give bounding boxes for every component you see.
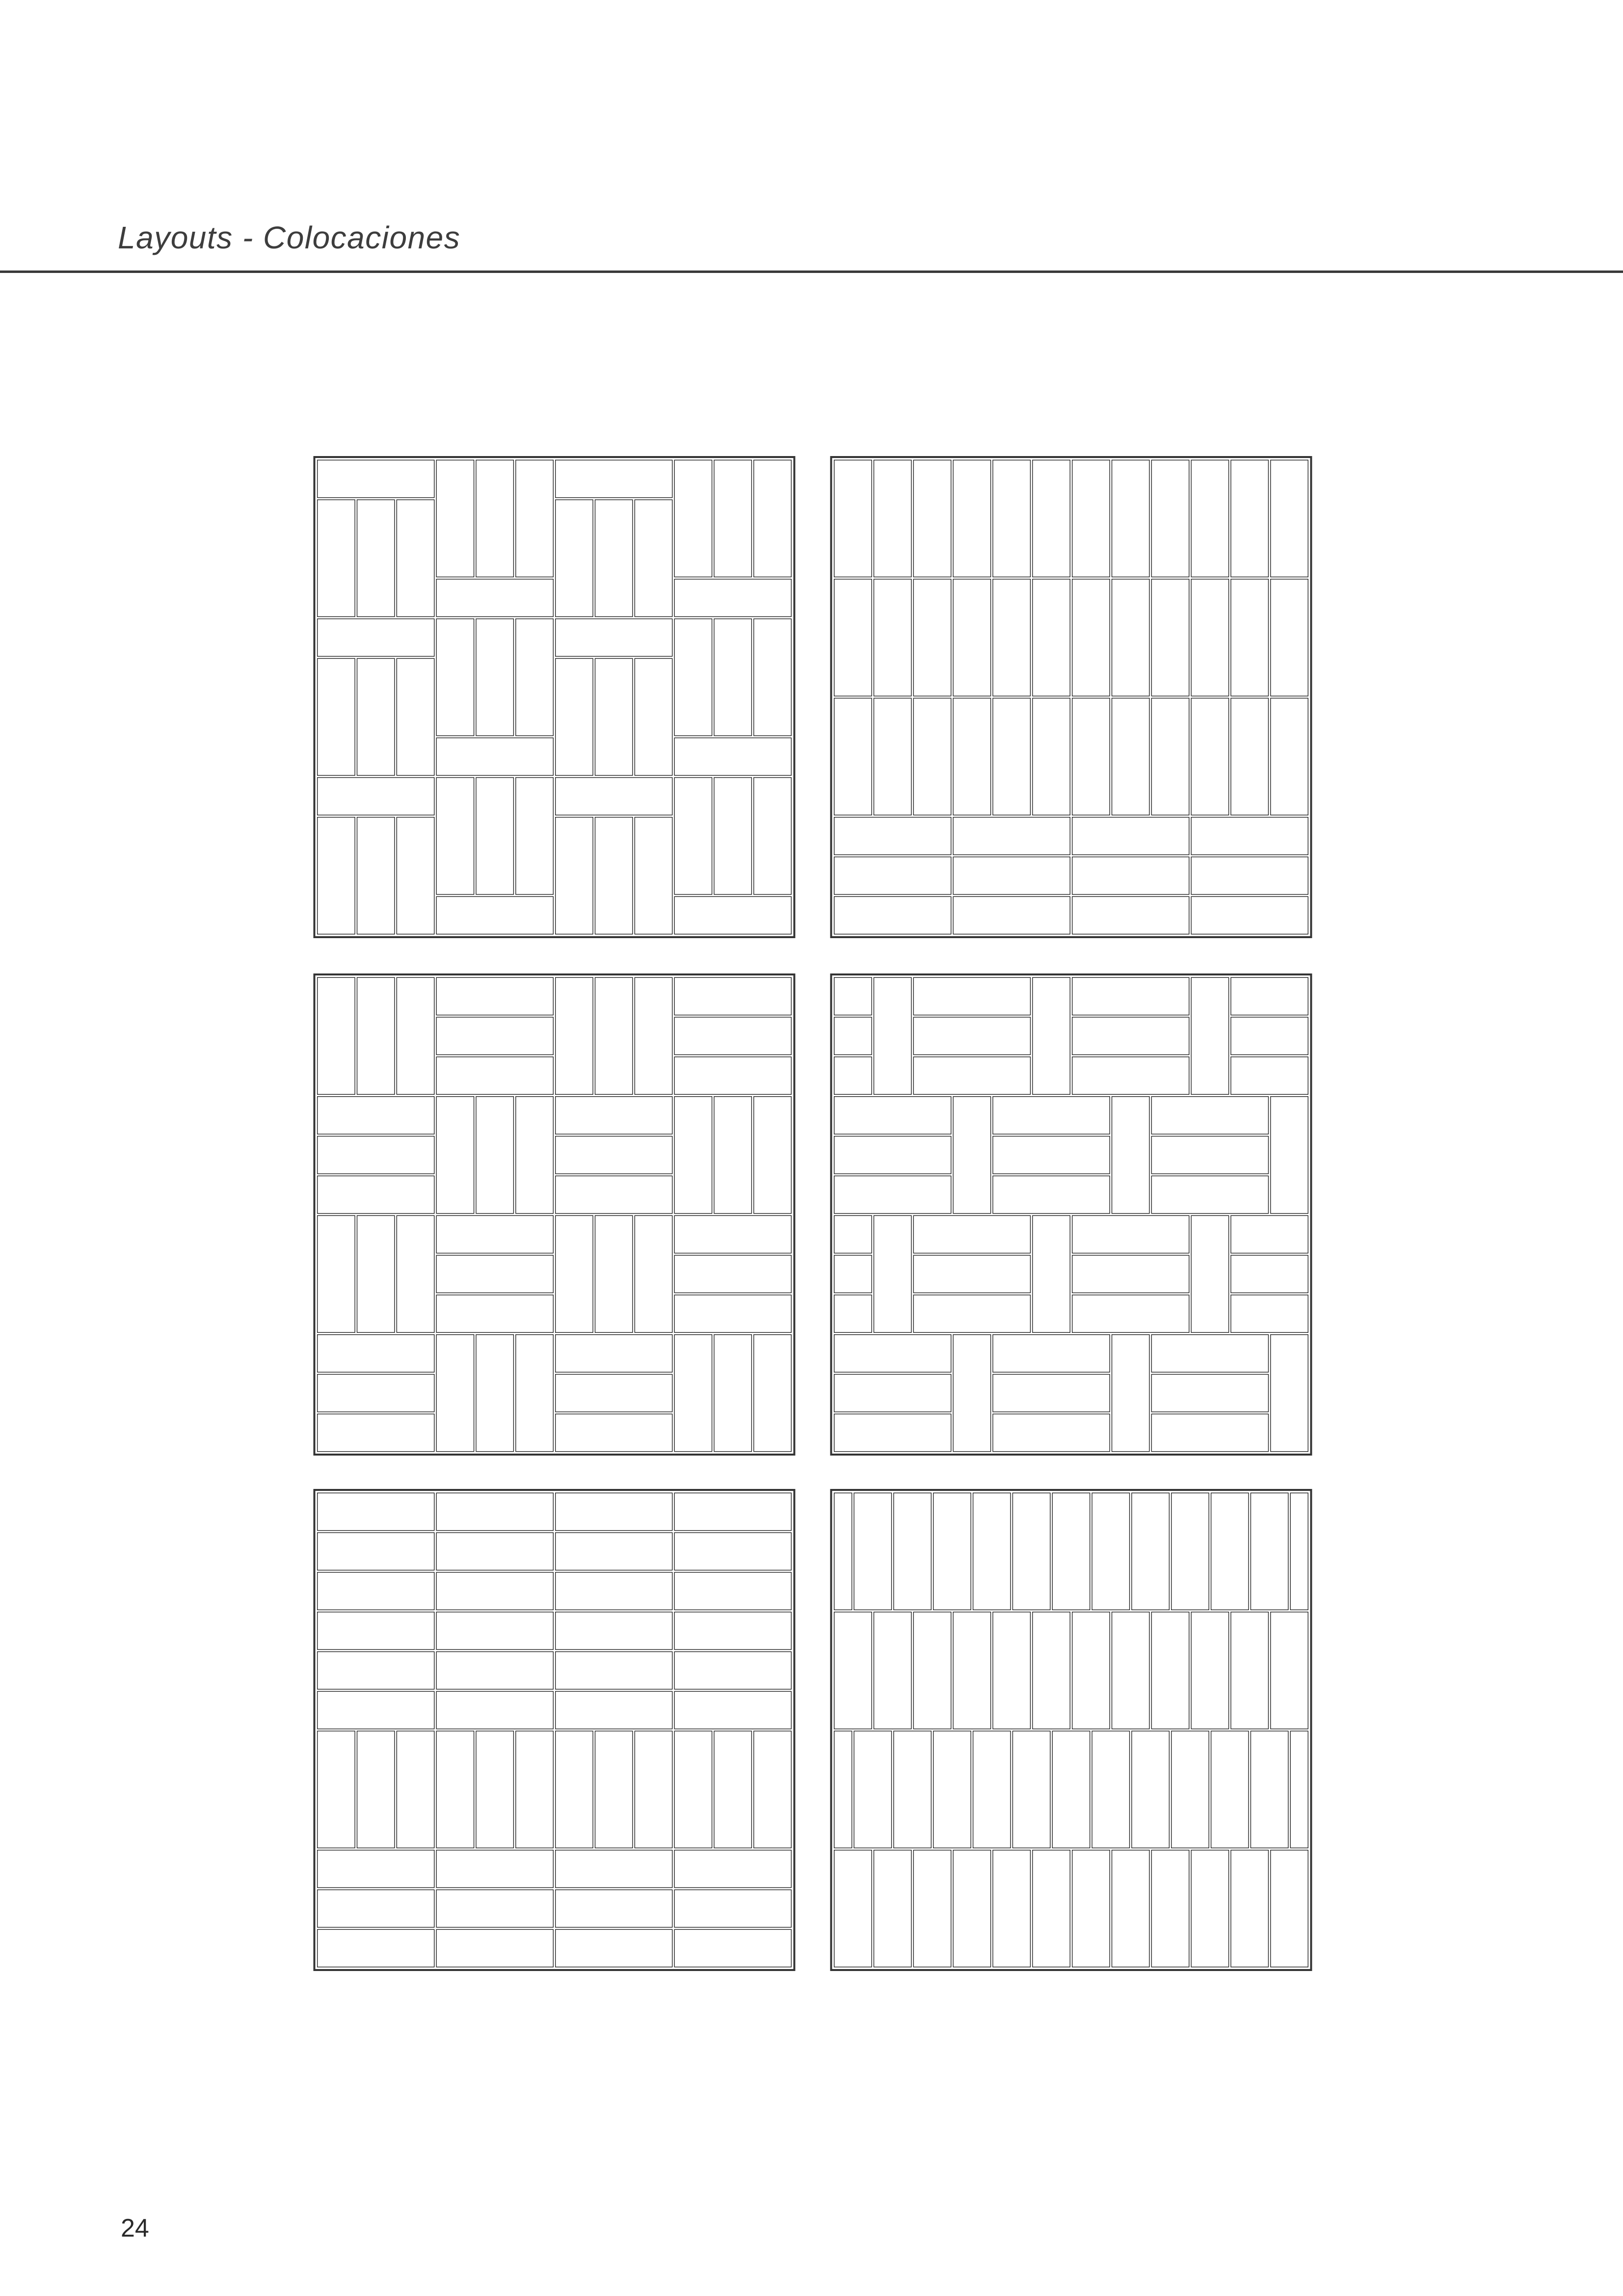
tile bbox=[357, 1216, 395, 1332]
tile bbox=[318, 1890, 434, 1927]
tile bbox=[436, 1057, 553, 1094]
tile bbox=[874, 579, 911, 696]
tile bbox=[1072, 1057, 1189, 1094]
tile bbox=[318, 1572, 434, 1610]
tile bbox=[874, 1850, 911, 1967]
tile bbox=[674, 1890, 791, 1927]
tile bbox=[436, 1216, 553, 1253]
tile bbox=[1033, 579, 1070, 696]
tile bbox=[674, 579, 791, 617]
tile bbox=[674, 977, 791, 1015]
tile bbox=[1151, 698, 1189, 815]
tile bbox=[1191, 857, 1308, 894]
panel-vertical-running-bond bbox=[830, 1489, 1312, 1971]
tile bbox=[1231, 1612, 1268, 1729]
tile bbox=[556, 1375, 672, 1412]
tile bbox=[993, 1612, 1030, 1729]
tile bbox=[556, 1691, 672, 1729]
tile bbox=[556, 1216, 593, 1332]
tile bbox=[834, 1335, 951, 1372]
tile bbox=[993, 698, 1030, 815]
tile bbox=[595, 1216, 633, 1332]
tile bbox=[1151, 1375, 1268, 1412]
tile bbox=[1271, 698, 1308, 815]
tile bbox=[714, 1335, 751, 1452]
tile bbox=[1072, 817, 1189, 855]
tile bbox=[953, 1097, 990, 1214]
tile bbox=[854, 1493, 891, 1610]
tile bbox=[1151, 1335, 1268, 1372]
tile bbox=[993, 1375, 1110, 1412]
tile bbox=[1072, 1017, 1189, 1054]
tile bbox=[1052, 1731, 1090, 1848]
tile bbox=[1033, 698, 1070, 815]
tile bbox=[1191, 977, 1228, 1094]
tile bbox=[834, 1136, 951, 1174]
tile bbox=[436, 1255, 553, 1293]
tile-pattern-svg bbox=[313, 973, 796, 1456]
tile bbox=[1211, 1493, 1249, 1610]
tile bbox=[953, 1612, 990, 1729]
tile bbox=[1072, 460, 1110, 577]
tile bbox=[476, 460, 513, 577]
panel-pier-and-panel-offset bbox=[830, 973, 1312, 1456]
tile bbox=[1251, 1731, 1288, 1848]
tile bbox=[436, 1493, 553, 1530]
tile bbox=[556, 1097, 672, 1134]
tile bbox=[318, 460, 434, 497]
tile bbox=[913, 977, 1030, 1015]
tile bbox=[913, 579, 951, 696]
tile bbox=[1072, 1255, 1189, 1293]
tile bbox=[834, 817, 951, 855]
tile bbox=[894, 1731, 931, 1848]
tile bbox=[993, 1097, 1110, 1134]
tile bbox=[714, 1731, 751, 1848]
tile bbox=[874, 1216, 911, 1332]
tile bbox=[318, 658, 355, 775]
tile bbox=[318, 1533, 434, 1570]
tile bbox=[953, 896, 1070, 934]
tile bbox=[516, 1097, 553, 1214]
tile bbox=[476, 1097, 513, 1214]
tile bbox=[436, 579, 553, 617]
tile bbox=[595, 817, 633, 934]
tile bbox=[318, 500, 355, 617]
tile bbox=[1211, 1731, 1249, 1848]
tile bbox=[834, 460, 872, 577]
tile bbox=[834, 1493, 852, 1610]
tile bbox=[674, 1533, 791, 1570]
tile bbox=[357, 977, 395, 1094]
tile bbox=[674, 1612, 791, 1649]
tile-pattern-svg bbox=[313, 1489, 796, 1971]
tile bbox=[397, 977, 434, 1094]
tile bbox=[318, 1731, 355, 1848]
tile bbox=[874, 977, 911, 1094]
tile bbox=[1271, 579, 1308, 696]
tile bbox=[1191, 460, 1228, 577]
tile bbox=[595, 977, 633, 1094]
tile bbox=[556, 1493, 672, 1530]
tile bbox=[556, 500, 593, 617]
tile bbox=[754, 1731, 791, 1848]
tile bbox=[953, 1850, 990, 1967]
tile bbox=[1231, 1216, 1308, 1253]
tile bbox=[714, 619, 751, 736]
tile bbox=[913, 460, 951, 577]
panel-basketweave bbox=[313, 973, 796, 1456]
tile bbox=[973, 1493, 1011, 1610]
tile bbox=[1271, 1097, 1308, 1214]
tile bbox=[1112, 1612, 1149, 1729]
tile bbox=[894, 1493, 931, 1610]
tile bbox=[913, 1295, 1030, 1332]
tile bbox=[595, 1731, 633, 1848]
tile bbox=[913, 1850, 951, 1967]
tile bbox=[1112, 579, 1149, 696]
tile bbox=[1151, 579, 1189, 696]
tile bbox=[1072, 896, 1189, 934]
tile bbox=[556, 817, 593, 934]
tile bbox=[1151, 1136, 1268, 1174]
tile bbox=[1132, 1493, 1169, 1610]
tile bbox=[1231, 1017, 1308, 1054]
tile bbox=[1191, 1612, 1228, 1729]
tile bbox=[318, 1216, 355, 1332]
tile bbox=[993, 1176, 1110, 1213]
tile bbox=[1033, 1850, 1070, 1967]
tile bbox=[674, 1929, 791, 1967]
tile bbox=[436, 460, 474, 577]
tile bbox=[516, 460, 553, 577]
tile bbox=[318, 1136, 434, 1174]
tile bbox=[318, 1097, 434, 1134]
tile bbox=[1231, 579, 1268, 696]
tile bbox=[1072, 1216, 1189, 1253]
tile bbox=[1191, 896, 1308, 934]
tile-pattern-svg bbox=[830, 1489, 1312, 1971]
tile bbox=[1072, 698, 1110, 815]
tile bbox=[436, 1691, 553, 1729]
page-title: Layouts - Colocaciones bbox=[118, 222, 460, 253]
tile bbox=[834, 1612, 872, 1729]
tile bbox=[754, 619, 791, 736]
tile bbox=[1012, 1731, 1050, 1848]
tile bbox=[357, 817, 395, 934]
tile bbox=[913, 698, 951, 815]
tile bbox=[556, 1890, 672, 1927]
tile bbox=[556, 977, 593, 1094]
tile bbox=[318, 817, 355, 934]
tile bbox=[556, 658, 593, 775]
tile bbox=[674, 1057, 791, 1094]
tile bbox=[1191, 817, 1308, 855]
tile bbox=[1151, 1612, 1189, 1729]
tile bbox=[516, 619, 553, 736]
tile bbox=[1171, 1493, 1209, 1610]
tile bbox=[1271, 1850, 1308, 1967]
tile bbox=[1231, 977, 1308, 1015]
panel-alternating-column-stack bbox=[313, 456, 796, 938]
tile bbox=[993, 1414, 1110, 1451]
tile bbox=[674, 1295, 791, 1332]
tile bbox=[993, 1136, 1110, 1174]
tile bbox=[1132, 1731, 1169, 1848]
tile bbox=[397, 1216, 434, 1332]
tile bbox=[913, 1216, 1030, 1253]
tile bbox=[1012, 1493, 1050, 1610]
tile bbox=[556, 1176, 672, 1213]
tile bbox=[674, 1850, 791, 1888]
tile bbox=[993, 1335, 1110, 1372]
tile bbox=[913, 1057, 1030, 1094]
tile bbox=[357, 1731, 395, 1848]
tile bbox=[993, 460, 1030, 577]
tile bbox=[436, 1731, 474, 1848]
tile bbox=[318, 1691, 434, 1729]
tile bbox=[953, 1335, 990, 1452]
tile bbox=[318, 1335, 434, 1372]
tile bbox=[834, 1414, 951, 1451]
tile bbox=[953, 857, 1070, 894]
tile bbox=[436, 1612, 553, 1649]
tile bbox=[674, 1572, 791, 1610]
tile bbox=[635, 977, 672, 1094]
tile bbox=[357, 658, 395, 775]
tile bbox=[635, 658, 672, 775]
tile bbox=[1151, 1414, 1268, 1451]
tile bbox=[556, 778, 672, 815]
tile bbox=[874, 698, 911, 815]
tile bbox=[436, 1533, 553, 1570]
tile bbox=[476, 619, 513, 736]
tile bbox=[318, 1850, 434, 1888]
page-number: 24 bbox=[121, 2215, 149, 2241]
tile bbox=[674, 619, 712, 736]
tile bbox=[953, 698, 990, 815]
tile bbox=[318, 977, 355, 1094]
tile bbox=[318, 1929, 434, 1967]
tile bbox=[1033, 460, 1070, 577]
tile bbox=[993, 1850, 1030, 1967]
tile bbox=[1033, 977, 1070, 1094]
tile bbox=[913, 1612, 951, 1729]
tile bbox=[834, 1176, 951, 1213]
tile bbox=[1072, 1295, 1189, 1332]
tile bbox=[1151, 460, 1189, 577]
tile bbox=[436, 738, 553, 775]
tile bbox=[834, 1731, 852, 1848]
tile bbox=[318, 1375, 434, 1412]
tile bbox=[635, 500, 672, 617]
tile bbox=[436, 619, 474, 736]
tile bbox=[1151, 1176, 1268, 1213]
tile bbox=[754, 778, 791, 894]
tile bbox=[436, 1017, 553, 1054]
tile bbox=[1191, 1216, 1228, 1332]
tile bbox=[516, 1731, 553, 1848]
tile bbox=[674, 1216, 791, 1253]
tile bbox=[397, 500, 434, 617]
tile bbox=[1191, 1850, 1228, 1967]
tile bbox=[436, 1929, 553, 1967]
tile bbox=[714, 778, 751, 894]
tile bbox=[476, 1731, 513, 1848]
tile bbox=[1231, 460, 1268, 577]
tile bbox=[556, 460, 672, 497]
tile bbox=[874, 1612, 911, 1729]
tile bbox=[1231, 1255, 1308, 1293]
tile bbox=[1092, 1493, 1129, 1610]
tile bbox=[993, 579, 1030, 696]
tile bbox=[556, 1572, 672, 1610]
tile bbox=[556, 1929, 672, 1967]
tile-pattern-svg bbox=[830, 456, 1312, 938]
tile bbox=[436, 1652, 553, 1689]
tile bbox=[1191, 698, 1228, 815]
tile bbox=[674, 1493, 791, 1530]
tile bbox=[834, 1375, 951, 1412]
tile bbox=[674, 1255, 791, 1293]
tile bbox=[436, 977, 553, 1015]
tile-pattern-svg bbox=[830, 973, 1312, 1456]
tile bbox=[556, 1612, 672, 1649]
panel-horizontal-stack-vertical-course bbox=[313, 1489, 796, 1971]
tile bbox=[436, 1890, 553, 1927]
tile bbox=[1072, 1850, 1110, 1967]
tile bbox=[674, 1335, 712, 1452]
tile bbox=[318, 1414, 434, 1451]
tile bbox=[318, 1176, 434, 1213]
tile bbox=[436, 1572, 553, 1610]
tile bbox=[973, 1731, 1011, 1848]
tile bbox=[556, 1533, 672, 1570]
tile bbox=[674, 1691, 791, 1729]
tile bbox=[1112, 1850, 1149, 1967]
tile bbox=[318, 1652, 434, 1689]
tile bbox=[318, 619, 434, 656]
tile bbox=[318, 1612, 434, 1649]
tile bbox=[635, 1216, 672, 1332]
tile bbox=[913, 1017, 1030, 1054]
tile bbox=[754, 1097, 791, 1214]
tile bbox=[1092, 1731, 1129, 1848]
tile bbox=[913, 1255, 1030, 1293]
tile bbox=[834, 857, 951, 894]
tile bbox=[674, 1017, 791, 1054]
tile bbox=[933, 1493, 971, 1610]
tile bbox=[1072, 977, 1189, 1015]
tile bbox=[953, 460, 990, 577]
tile bbox=[1072, 857, 1189, 894]
tile bbox=[397, 658, 434, 775]
tile bbox=[1112, 1097, 1149, 1214]
tile bbox=[674, 738, 791, 775]
tile bbox=[854, 1731, 891, 1848]
tile bbox=[436, 1295, 553, 1332]
tile bbox=[874, 460, 911, 577]
tile bbox=[1191, 579, 1228, 696]
tile bbox=[595, 658, 633, 775]
tile bbox=[556, 619, 672, 656]
tile bbox=[1231, 1850, 1268, 1967]
tile bbox=[556, 1414, 672, 1451]
tile bbox=[318, 1493, 434, 1530]
tile bbox=[714, 460, 751, 577]
tile bbox=[1290, 1731, 1308, 1848]
tile bbox=[754, 1335, 791, 1452]
tile bbox=[556, 1850, 672, 1888]
tile bbox=[1072, 1612, 1110, 1729]
header-rule bbox=[0, 270, 1623, 273]
tile bbox=[1271, 460, 1308, 577]
tile bbox=[953, 579, 990, 696]
tile bbox=[436, 778, 474, 894]
tile bbox=[674, 1097, 712, 1214]
tile bbox=[476, 1335, 513, 1452]
tile bbox=[556, 1731, 593, 1848]
tile bbox=[834, 698, 872, 815]
tile bbox=[397, 1731, 434, 1848]
tile bbox=[1290, 1493, 1308, 1610]
tile bbox=[357, 500, 395, 617]
tile bbox=[556, 1335, 672, 1372]
tile bbox=[834, 579, 872, 696]
tile bbox=[318, 778, 434, 815]
tile bbox=[834, 896, 951, 934]
tile bbox=[1112, 460, 1149, 577]
tile bbox=[834, 1216, 872, 1253]
tile bbox=[476, 778, 513, 894]
tile bbox=[834, 1017, 872, 1054]
tile bbox=[397, 817, 434, 934]
tile bbox=[635, 817, 672, 934]
tile bbox=[595, 500, 633, 617]
tile bbox=[1271, 1335, 1308, 1452]
tile bbox=[1112, 698, 1149, 815]
tile bbox=[1231, 1057, 1308, 1094]
tile bbox=[834, 1255, 872, 1293]
tile bbox=[436, 1097, 474, 1214]
tile bbox=[834, 977, 872, 1015]
tile bbox=[1112, 1335, 1149, 1452]
tile bbox=[1033, 1612, 1070, 1729]
tile bbox=[714, 1097, 751, 1214]
tile bbox=[674, 1731, 712, 1848]
tile bbox=[834, 1097, 951, 1134]
tile bbox=[436, 1335, 474, 1452]
tile-pattern-svg bbox=[313, 456, 796, 938]
tile bbox=[1271, 1612, 1308, 1729]
tile bbox=[674, 778, 712, 894]
tile bbox=[953, 817, 1070, 855]
tile bbox=[674, 460, 712, 577]
tile bbox=[674, 896, 791, 934]
tile bbox=[834, 1057, 872, 1094]
tile bbox=[1171, 1731, 1209, 1848]
tile bbox=[516, 1335, 553, 1452]
tile bbox=[1033, 1216, 1070, 1332]
tile bbox=[556, 1136, 672, 1174]
tile bbox=[635, 1731, 672, 1848]
tile bbox=[1151, 1097, 1268, 1134]
tile bbox=[674, 1652, 791, 1689]
tile bbox=[436, 896, 553, 934]
tile bbox=[1251, 1493, 1288, 1610]
tile bbox=[1231, 1295, 1308, 1332]
tile bbox=[834, 1850, 872, 1967]
